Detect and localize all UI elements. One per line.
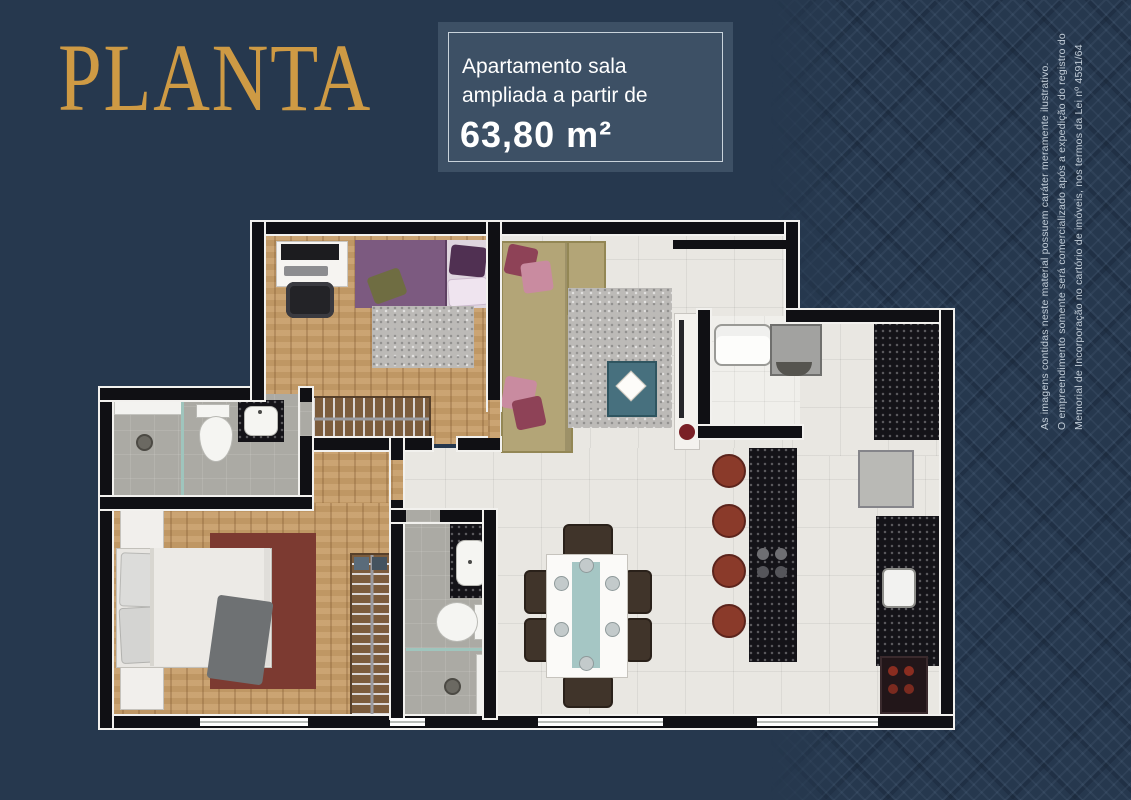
wall-bathroom-1-bottom — [100, 497, 312, 509]
bedroom-2-pillow-light — [447, 277, 489, 308]
stove-burner-1 — [888, 666, 898, 676]
kitchen-counter-upper — [874, 322, 941, 440]
plate-5 — [579, 558, 594, 573]
wall-bedroom-2-living — [488, 222, 500, 410]
dining-chair-right-1 — [624, 570, 652, 614]
plate-3 — [605, 576, 620, 591]
bathroom-2-door-opening — [406, 510, 440, 522]
laundry-sink — [714, 324, 772, 366]
fridge — [858, 450, 914, 508]
cooktop-burner-2 — [775, 548, 787, 560]
bathroom-2-shower-drain — [444, 678, 461, 695]
wall-living-right — [786, 222, 798, 322]
stove-burner-2 — [904, 666, 914, 676]
dining-chair-bottom — [563, 674, 613, 708]
bathroom-2-toilet-bowl — [436, 602, 478, 642]
wall-bedroom-2-left — [252, 222, 264, 400]
bedroom-2-office-chair — [286, 282, 334, 318]
sofa-pillow-4 — [511, 395, 547, 431]
plate-4 — [605, 622, 620, 637]
window-bathroom-2 — [390, 718, 425, 726]
wall-exterior-left — [100, 388, 112, 728]
floor-plan — [0, 0, 1131, 800]
bedroom-2-door-opening — [488, 400, 500, 438]
bathroom-1-door-opening — [300, 402, 312, 436]
wardrobe-box-2 — [372, 557, 387, 570]
bathroom-2-faucet — [468, 560, 472, 564]
dining-table-runner — [572, 562, 600, 668]
wall-service-top — [786, 310, 953, 322]
island-stool-3 — [712, 554, 746, 588]
plate-2 — [554, 622, 569, 637]
wall-service-left — [698, 310, 710, 438]
island-stool-2 — [712, 504, 746, 538]
bathroom-1-shower-glass — [181, 398, 184, 498]
sofa-pillow-2 — [520, 260, 554, 294]
bedroom-2-wardrobe — [311, 396, 431, 442]
stove-burner-4 — [904, 684, 914, 694]
window-kitchen — [757, 718, 878, 726]
kitchen-sink — [882, 568, 916, 608]
bathroom-2-shower-glass — [406, 648, 488, 651]
cooktop-burner-4 — [775, 566, 787, 578]
window-dining — [538, 718, 663, 726]
window-master-bedroom — [200, 718, 308, 726]
island-stool-4 — [712, 604, 746, 638]
wall-bedroom-2-bottom-a — [300, 438, 432, 450]
wall-exterior-right — [941, 310, 953, 728]
tv-screen — [679, 320, 684, 418]
plate-6 — [579, 656, 594, 671]
wall-bathroom-1-top — [100, 388, 258, 400]
bathroom-1-shower-drain — [136, 434, 153, 451]
living-ceiling-beam — [673, 240, 788, 249]
wardrobe-box-1 — [354, 557, 369, 570]
dining-chair-right-2 — [624, 618, 652, 662]
bedroom-2-keyboard — [284, 266, 328, 276]
stove-burner-3 — [888, 684, 898, 694]
wall-bathroom-2-right — [484, 510, 496, 718]
cooktop-burner-3 — [757, 566, 769, 578]
master-nightstand-1 — [120, 508, 164, 552]
master-nightstand-2 — [120, 664, 164, 710]
flower-vase — [679, 424, 695, 440]
cooktop-burner-1 — [757, 548, 769, 560]
plate-1 — [554, 576, 569, 591]
master-wardrobe — [350, 553, 394, 717]
bedroom-2-desk-shelf — [281, 244, 339, 260]
flyer-page: PLANTA Apartamento sala ampliada a parti… — [0, 0, 1131, 800]
master-door-opening — [391, 460, 403, 500]
bedroom-2-rug — [372, 306, 474, 368]
bedroom-2-pillow-dark — [449, 244, 488, 278]
bathroom-1-shelf — [114, 401, 184, 415]
master-throw-blanket — [206, 595, 273, 686]
wall-service-bottom — [698, 426, 802, 438]
island-stool-1 — [712, 454, 746, 488]
wall-exterior-top — [252, 222, 798, 234]
wall-bedroom-2-bottom-b — [458, 438, 500, 450]
bathroom-1-faucet — [258, 410, 262, 414]
